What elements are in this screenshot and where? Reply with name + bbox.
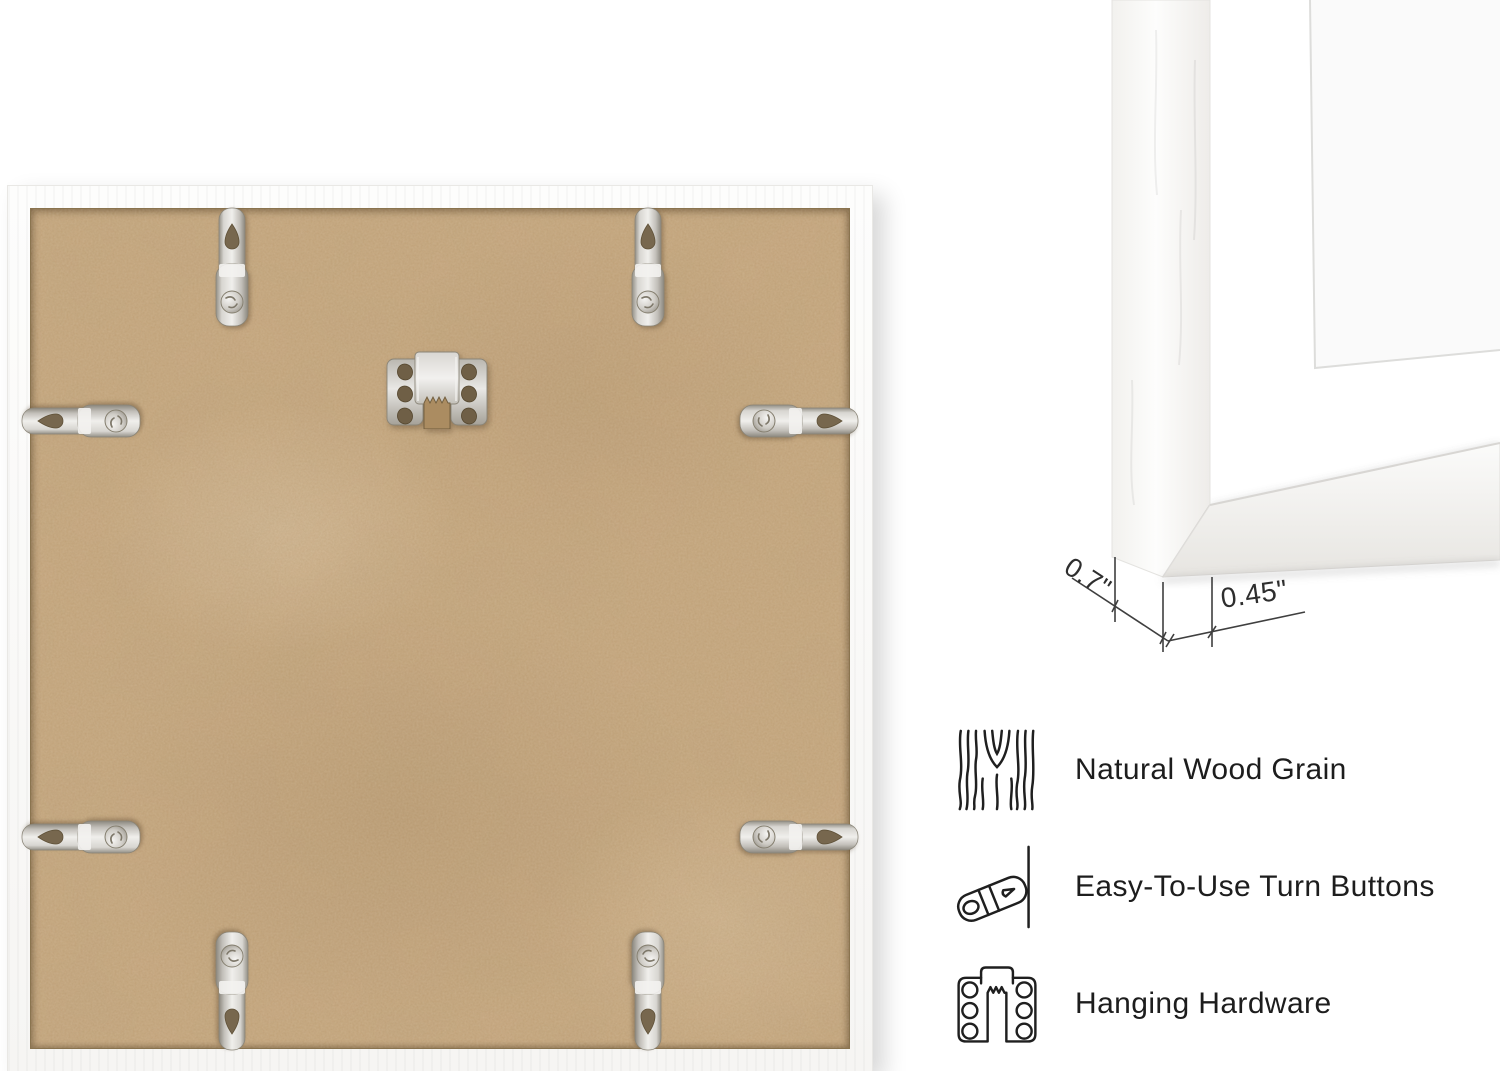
artwork-area [1310,0,1500,368]
product-image: 0.7" 0.45" Natural Wood Gr [0,0,1500,1071]
turn-button-hardware [628,930,668,1052]
feature-turn-buttons: Easy-To-Use Turn Buttons [953,844,1498,930]
turn-button-hardware [738,401,860,441]
backing-texture [31,209,849,1048]
feature-label: Natural Wood Grain [1075,753,1347,787]
turn-button-hardware [628,206,668,328]
turn-button-hardware [212,206,252,328]
hanging-hardware-icon [953,961,1041,1047]
turn-button-hardware [738,817,860,857]
backing-board [30,208,850,1049]
turn-button-hardware [212,930,252,1052]
feature-hanging-hardware: Hanging Hardware [953,961,1498,1047]
feature-label: Easy-To-Use Turn Buttons [1075,870,1435,904]
wood-grain-icon [953,727,1041,813]
feature-list: Natural Wood Grain Easy-To-Use Turn Butt… [953,727,1498,1071]
sawtooth-hanger-hardware [385,347,489,429]
feature-label: Hanging Hardware [1075,987,1332,1021]
turn-button-hardware [20,817,142,857]
feature-natural-wood-grain: Natural Wood Grain [953,727,1498,813]
turn-button-icon [953,844,1041,930]
turn-button-hardware [20,401,142,441]
frame-back-photo [8,186,872,1071]
